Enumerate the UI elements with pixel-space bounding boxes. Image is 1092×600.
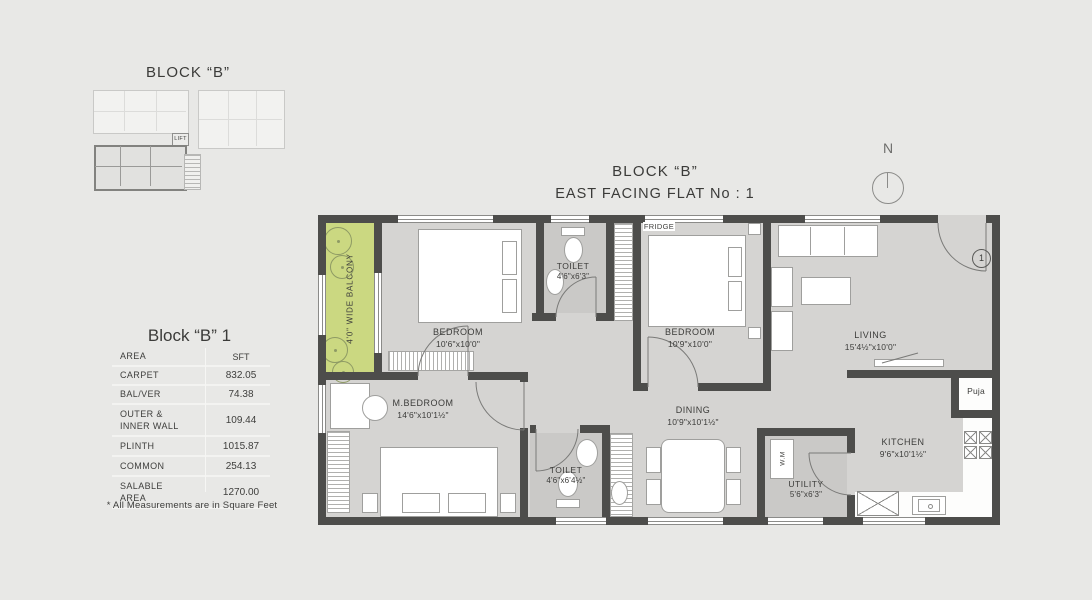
mini-plan-title: BLOCK “B”	[103, 64, 273, 81]
room-label-balcony: 4'0" WIDE BALCONY	[346, 249, 355, 349]
area-table: AREA SFT CARPET 832.05 BAL/VER 74.38 OUT…	[112, 348, 270, 509]
door-arc	[556, 277, 596, 317]
room-label-toilet1: TOILET 4'6"x6'3"	[535, 261, 611, 282]
room-label-mbedroom: M.BEDROOM 14'6"x10'1½"	[363, 398, 483, 421]
row-value: 109.44	[212, 415, 270, 426]
room-label-dining: DINING 10'9"x10'1½"	[634, 405, 752, 428]
table-header-row: AREA SFT	[112, 348, 270, 367]
mini-wall	[95, 166, 182, 167]
row-label: COMMON	[112, 460, 212, 472]
console-line	[882, 353, 918, 363]
room-label-living: LIVING 15'4½"x10'0"	[808, 330, 933, 353]
plan-title-facing: EAST FACING FLAT No : 1	[530, 186, 780, 202]
room-label-kitchen: KITCHEN 9'6"x10'1½"	[843, 437, 963, 460]
room-label-bedroom1: BEDROOM 10'6"x10'0"	[398, 327, 518, 350]
row-label: OUTER & INNER WALL	[112, 408, 212, 432]
mini-faded-flat-left	[93, 90, 189, 134]
door-arc	[476, 382, 524, 430]
staircase-icon	[184, 154, 201, 190]
row-value: 254.13	[212, 461, 270, 472]
lift-label: LIFT	[174, 136, 187, 142]
floor-plan: W.M FRIDGE 4'0" WIDE BALCONY BEDROOM 10'…	[318, 215, 1000, 525]
table-row: COMMON 254.13	[112, 457, 270, 477]
fridge-text: FRIDGE	[643, 222, 675, 231]
plan-title-block: BLOCK “B”	[530, 163, 780, 180]
room-label-puja: Puja	[956, 386, 996, 397]
fridge-label: FRIDGE	[318, 222, 1000, 231]
header-sft: SFT	[212, 352, 270, 362]
mini-line	[94, 111, 186, 112]
area-table-title: Block “B” 1	[92, 326, 287, 346]
row-label: BAL/VER	[112, 388, 212, 400]
row-value: 832.05	[212, 370, 270, 381]
table-row: OUTER & INNER WALL 109.44	[112, 405, 270, 437]
header-area: AREA	[112, 350, 212, 362]
row-label: PLINTH	[112, 440, 212, 452]
north-label: N	[872, 140, 904, 156]
table-row: PLINTH 1015.87	[112, 437, 270, 457]
north-circle	[872, 172, 904, 204]
row-label: CARPET	[112, 369, 212, 381]
room-label-utility: UTILITY 5'6"x6'3"	[768, 479, 844, 500]
north-arrow-icon: N	[872, 140, 904, 206]
door-arcs	[318, 215, 1000, 525]
measurements-footnote: * All Measurements are in Square Feet	[92, 500, 292, 511]
table-row: BAL/VER 74.38	[112, 386, 270, 405]
table-column-divider	[205, 348, 206, 492]
room-label-toilet2: TOILET 4'6"x6'4½"	[530, 465, 602, 486]
row-value: 1015.87	[212, 441, 270, 452]
room-label-bedroom2: BEDROOM 10'9"x10'0"	[630, 327, 750, 350]
table-row: CARPET 832.05	[112, 367, 270, 386]
plan-title: BLOCK “B” EAST FACING FLAT No : 1	[530, 163, 780, 202]
mini-site-plan: LIFT	[88, 86, 288, 192]
north-tick	[887, 173, 888, 188]
mini-highlighted-flat	[94, 145, 187, 191]
row-value: 1270.00	[212, 487, 270, 498]
flat-number-badge: 1	[972, 249, 991, 268]
page: { "page": {"background": "#e8e8e6"}, "co…	[0, 0, 1092, 600]
mini-line	[199, 119, 282, 120]
row-value: 74.38	[212, 389, 270, 400]
